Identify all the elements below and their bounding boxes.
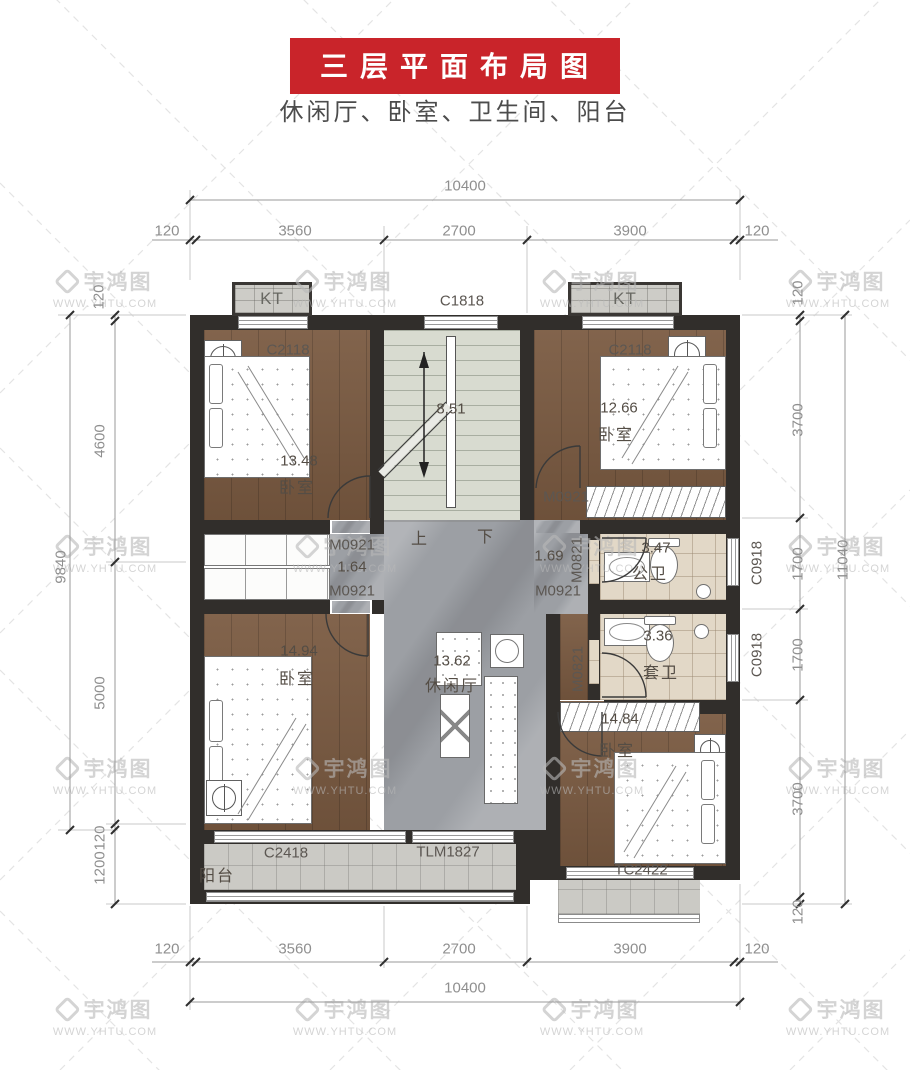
watermark-url: WWW.YHTU.COM: [540, 298, 644, 310]
dim-left-1: 4600: [92, 424, 109, 457]
dim-bottom-1: 3560: [278, 941, 311, 958]
sliding-door-tlm1827: [412, 831, 514, 843]
brand-logo-icon: [787, 755, 814, 782]
stair-down-label: 下: [477, 523, 495, 547]
room-area-value: 14.94: [280, 643, 318, 660]
page-subtitle: 休闲厅、卧室、卫生间、阳台: [280, 92, 631, 127]
watermark-brand: 宇鸿图: [323, 753, 392, 783]
window-label-c0918: C0918: [749, 541, 766, 585]
brand-logo-icon: [294, 996, 321, 1023]
watermark-url: WWW.YHTU.COM: [786, 1026, 890, 1038]
door-label-m0821: M0821: [570, 646, 587, 692]
watermark-brand: 宇鸿图: [83, 753, 152, 783]
brand-logo-icon: [294, 268, 321, 295]
floor-plan-page: 三层平面布局图 休闲厅、卧室、卫生间、阳台 宇鸿图WWW.YHTU.COM 宇鸿…: [0, 0, 910, 1070]
sofa: [484, 676, 518, 804]
brand-logo-icon: [54, 268, 81, 295]
watermark-url: WWW.YHTU.COM: [293, 1026, 397, 1038]
watermark-url: WWW.YHTU.COM: [53, 1026, 157, 1038]
ac-unit-label: KT: [260, 289, 284, 309]
shower-head-icon: [696, 584, 711, 599]
watermark-brand: 宇鸿图: [816, 753, 885, 783]
brand-logo-icon: [294, 533, 321, 560]
watermark-brand: 宇鸿图: [323, 994, 392, 1024]
window-c2118-right: [582, 316, 674, 329]
window-c0918-top: [727, 538, 739, 586]
pillow: [703, 364, 717, 404]
watermark-brand: 宇鸿图: [570, 994, 639, 1024]
pillow: [701, 760, 715, 800]
dim-top-4: 120: [744, 223, 769, 240]
wall: [190, 315, 204, 844]
brand-logo-icon: [294, 755, 321, 782]
watermark-brand: 宇鸿图: [323, 266, 392, 296]
pillow: [703, 408, 717, 448]
dim-top-0: 120: [154, 223, 179, 240]
watermark: 宇鸿图WWW.YHTU.COM: [53, 753, 157, 797]
room-name: 阳台: [199, 862, 235, 886]
dim-bottom-3: 3900: [613, 941, 646, 958]
wall: [370, 315, 384, 534]
watermark: 宇鸿图WWW.YHTU.COM: [53, 994, 157, 1038]
room-name: 休闲厅: [425, 672, 479, 696]
dim-right-1: 3700: [790, 403, 807, 436]
watermark-url: WWW.YHTU.COM: [540, 563, 644, 575]
dim-right-4: 3700: [790, 782, 807, 815]
room-area-value: 12.66: [600, 400, 638, 417]
door-label-tlm1827: TLM1827: [416, 844, 479, 861]
watermark: 宇鸿图WWW.YHTU.COM: [540, 994, 644, 1038]
page-title: 三层平面布局图: [290, 38, 620, 94]
watermark-brand: 宇鸿图: [816, 266, 885, 296]
watermark: 宇鸿图WWW.YHTU.COM: [786, 994, 890, 1038]
dim-right-total: 11040: [835, 540, 852, 581]
wall: [372, 600, 384, 614]
dim-right-3: 1700: [790, 638, 807, 671]
brand-logo-icon: [541, 755, 568, 782]
pillow: [209, 364, 223, 404]
watermark: 宇鸿图WWW.YHTU.COM: [293, 753, 397, 797]
dim-top-3: 3900: [613, 223, 646, 240]
dim-top-total: 10400: [444, 178, 486, 195]
brand-logo-icon: [54, 996, 81, 1023]
window-c2118-left: [238, 316, 308, 329]
dim-left-2: 5000: [92, 676, 109, 709]
watermark-brand: 宇鸿图: [83, 994, 152, 1024]
window-label-c2118-left: C2118: [266, 342, 309, 359]
wall: [726, 315, 740, 880]
wardrobe: [586, 486, 726, 518]
tv-cabinet: [440, 694, 470, 758]
dim-left-4: 1200: [92, 851, 109, 884]
door-opening: [332, 601, 370, 613]
window-c1818: [424, 316, 498, 329]
dim-left-0: 120: [91, 284, 108, 309]
pillow: [209, 700, 223, 742]
stair-area-value: 8.51: [436, 401, 465, 418]
dim-left-3: 120: [92, 825, 109, 850]
window-label-tc2422: TC2422: [614, 862, 667, 879]
room-name: 卧室: [598, 421, 634, 445]
shower-head-icon: [694, 624, 709, 639]
wall: [190, 600, 330, 614]
room-name: 卧室: [279, 665, 315, 689]
watermark-url: WWW.YHTU.COM: [540, 1026, 644, 1038]
watermark-url: WWW.YHTU.COM: [293, 785, 397, 797]
room-area-value: 14.84: [601, 711, 639, 728]
watermark: 宇鸿图WWW.YHTU.COM: [293, 266, 397, 310]
brand-logo-icon: [541, 268, 568, 295]
door-label-m0921: M0921: [543, 489, 589, 506]
dim-bottom-total: 10400: [444, 980, 486, 997]
dim-right-0: 120: [790, 280, 807, 305]
wall: [588, 600, 740, 614]
room-area-value: 13.48: [280, 453, 318, 470]
watermark: 宇鸿图WWW.YHTU.COM: [293, 994, 397, 1038]
watermark-url: WWW.YHTU.COM: [293, 298, 397, 310]
dim-right-5: 120: [790, 899, 807, 924]
stair-up-label: 上: [411, 525, 429, 549]
pillow: [701, 804, 715, 844]
dim-right-2: 1700: [790, 547, 807, 580]
watermark-brand: 宇鸿图: [83, 531, 152, 561]
room-area-value: 13.62: [433, 653, 471, 670]
window-label-c0918: C0918: [749, 633, 766, 677]
door-opening: [589, 640, 599, 684]
room-area-value: 3.47: [641, 540, 670, 557]
watermark-url: WWW.YHTU.COM: [540, 785, 644, 797]
dim-top-1: 3560: [278, 223, 311, 240]
side-table-plant: [490, 634, 524, 668]
dim-bottom-4: 120: [744, 941, 769, 958]
window-label-c1818: C1818: [440, 293, 484, 310]
watermark-url: WWW.YHTU.COM: [53, 785, 157, 797]
ceiling-lamp-icon: [206, 780, 242, 816]
window-label-c2418: C2418: [264, 845, 308, 862]
window-c2418: [214, 831, 406, 843]
passage-area-value: 1.69: [534, 548, 563, 565]
door-label-m0921: M0921: [535, 583, 581, 600]
dim-top-2: 2700: [442, 223, 475, 240]
watermark-brand: 宇鸿图: [816, 994, 885, 1024]
wall: [546, 614, 560, 700]
wall: [520, 315, 534, 520]
wall: [546, 700, 560, 714]
window-c0918-bottom: [727, 634, 739, 682]
room-name: 卧室: [599, 737, 635, 761]
window-label-c2118-right: C2118: [608, 342, 651, 359]
dim-bottom-0: 120: [154, 941, 179, 958]
room-name: 套卫: [643, 659, 679, 683]
pillow: [209, 408, 223, 448]
door-label-m0921: M0921: [329, 583, 375, 600]
watermark-brand: 宇鸿图: [570, 266, 639, 296]
door-label-m0921: M0921: [329, 537, 375, 554]
door-label-m0821: M0821: [569, 537, 586, 583]
dim-left-total: 9840: [53, 550, 70, 583]
room-name: 卧室: [279, 474, 315, 498]
brand-logo-icon: [54, 755, 81, 782]
brand-logo-icon: [787, 996, 814, 1023]
watermark: 宇鸿图WWW.YHTU.COM: [540, 266, 644, 310]
dim-bottom-2: 2700: [442, 941, 475, 958]
passage-area-value: 1.64: [337, 559, 366, 576]
brand-logo-icon: [541, 996, 568, 1023]
room-name: 公卫: [632, 560, 668, 584]
stair-stringer: [446, 336, 456, 508]
small-balcony: [558, 880, 700, 914]
small-balcony-railing: [558, 914, 700, 923]
balcony-railing: [206, 892, 514, 902]
room-area-value: 3.36: [643, 628, 672, 645]
